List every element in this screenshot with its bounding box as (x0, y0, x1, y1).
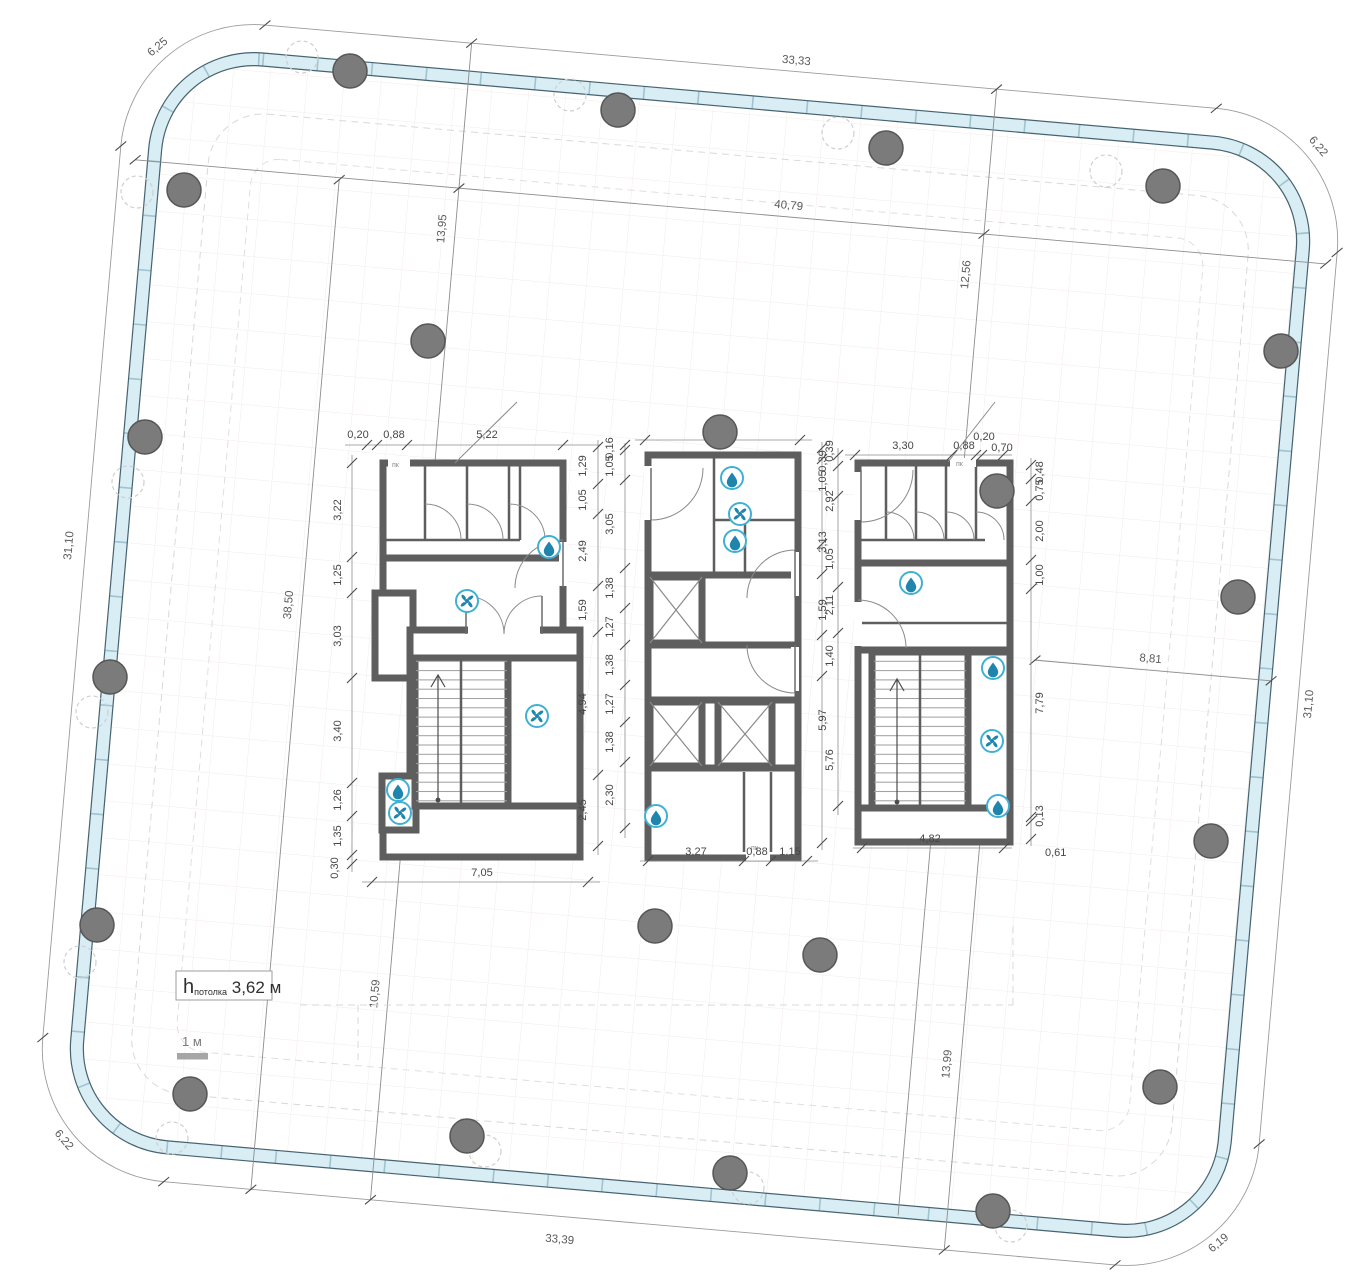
dim-label: 1,15 (779, 846, 800, 858)
column (1221, 580, 1255, 614)
dim-left: 31,10 (62, 531, 76, 561)
dim-label: 5,22 (476, 429, 497, 441)
column (803, 938, 837, 972)
dim-label: 1,26 (332, 789, 344, 810)
dim-label: 3,30 (892, 440, 913, 452)
drop-icon (982, 657, 1004, 679)
dim-label: 1,25 (332, 564, 344, 585)
drop-icon (900, 572, 922, 594)
dim-label: 3,40 (332, 720, 344, 741)
column (1264, 334, 1298, 368)
ceiling-height-note: hпотолка 3,62 м (176, 971, 281, 1000)
dim-label: 1,59 (817, 599, 829, 620)
column (638, 909, 672, 943)
drop-icon (538, 536, 560, 558)
ceiling-symbol: h (183, 976, 194, 998)
fan-icon (729, 503, 751, 525)
ceiling-subscript: потолка (194, 987, 227, 997)
dim-label: 2,92 (824, 490, 836, 511)
dim-label: 1,27 (604, 616, 616, 637)
dim-axis-40-79: 40,79 (774, 199, 804, 213)
dim-right: 31,10 (1302, 689, 1316, 719)
dim-label: 1,40 (824, 645, 836, 666)
dim-label: 2,49 (577, 540, 589, 561)
dim-label: 2,00 (1034, 520, 1046, 541)
drop-icon (645, 805, 667, 827)
drop-icon (724, 530, 746, 552)
dim-label: 0,88 (383, 429, 404, 441)
dim-axis-8-81: 8,81 (1139, 652, 1162, 666)
floor-plan-page: 33,33 33,39 31,10 31,10 6,25 6,22 6,19 6… (0, 0, 1348, 1280)
column (167, 173, 201, 207)
ceiling-value: 3,62 м (227, 978, 281, 997)
dim-label: 3,05 (604, 513, 616, 534)
dim-label: 1,38 (604, 577, 616, 598)
fan-icon (389, 802, 411, 824)
column (333, 54, 367, 88)
floor-plan-drawing: 33,33 33,39 31,10 31,10 6,25 6,22 6,19 6… (0, 0, 1348, 1280)
fan-icon (456, 590, 478, 612)
column (173, 1077, 207, 1111)
column (1143, 1070, 1177, 1104)
dim-label: 1,00 (1034, 564, 1046, 585)
core-center-elevators: пк (644, 455, 799, 861)
column (976, 1194, 1010, 1228)
column (411, 324, 445, 358)
fire-hose-label: пк (956, 461, 964, 468)
dim-label: 0,39 (817, 450, 829, 471)
core-east: пк (854, 402, 1010, 842)
scale-label: 1 м (182, 1034, 202, 1049)
drop-icon (987, 795, 1009, 817)
fan-icon (981, 730, 1003, 752)
dim-label: 0,20 (347, 429, 368, 441)
dim-label: 5,76 (824, 749, 836, 770)
column (450, 1119, 484, 1153)
column (93, 660, 127, 694)
column (601, 93, 635, 127)
dim-label: 1,05 (817, 470, 829, 491)
dim-label: 1,05 (577, 489, 589, 510)
dim-label: 0,75 (1034, 479, 1046, 500)
dim-label: 2,45 (577, 799, 589, 820)
column (128, 420, 162, 454)
dim-label: 2,30 (604, 784, 616, 805)
dim-corner-bl: 6,22 (52, 1128, 76, 1153)
dim-axis-12-56: 12,56 (959, 260, 973, 290)
drop-icon (721, 467, 743, 489)
fan-icon (526, 705, 548, 727)
dim-axis-10-59: 10,59 (368, 979, 382, 1009)
column (703, 415, 737, 449)
fire-hose-label: пк (392, 462, 400, 469)
dim-corner-tl: 6,25 (146, 35, 171, 59)
dim-label: 0,70 (991, 442, 1012, 454)
dim-label: 4,82 (919, 833, 940, 845)
dim-label: 7,79 (1034, 692, 1046, 713)
dim-axis-38-50: 38,50 (282, 590, 296, 620)
dim-axis-13-99: 13,99 (940, 1049, 954, 1079)
dim-label: 7,05 (471, 867, 492, 879)
dim-label: 1,59 (577, 599, 589, 620)
dim-label: 1,27 (604, 693, 616, 714)
dim-bottom: 33,39 (545, 1233, 575, 1247)
dim-label: 1,38 (604, 654, 616, 675)
scale-bar-rect (177, 1053, 208, 1060)
dim-label: 1,38 (604, 731, 616, 752)
dim-corner-tr: 6,22 (1306, 134, 1330, 159)
dim-label: 0,88 (746, 846, 767, 858)
dim-label: 0,30 (329, 857, 341, 878)
dim-label: 0,13 (1034, 805, 1046, 826)
dim-label: 0,61 (1045, 847, 1066, 859)
column (80, 908, 114, 942)
dim-corner-br: 6,19 (1206, 1231, 1231, 1255)
dim-label: 1,35 (332, 825, 344, 846)
dim-axis-13-95: 13,95 (435, 214, 449, 244)
column (1194, 824, 1228, 858)
dim-label: 1,05 (604, 455, 616, 476)
dim-label: 4,94 (577, 693, 589, 714)
dim-label: 5,97 (817, 709, 829, 730)
dim-top: 33,33 (781, 54, 811, 68)
column (1146, 169, 1180, 203)
dim-label: 3,27 (685, 846, 706, 858)
column (713, 1156, 747, 1190)
column (869, 131, 903, 165)
dim-label: 3,22 (332, 499, 344, 520)
drop-icon (387, 779, 409, 801)
dim-label: 3,13 (817, 531, 829, 552)
dim-label: 3,03 (332, 625, 344, 646)
column (980, 474, 1014, 508)
dim-label: 0,88 (953, 440, 974, 452)
dim-label: 1,29 (577, 455, 589, 476)
